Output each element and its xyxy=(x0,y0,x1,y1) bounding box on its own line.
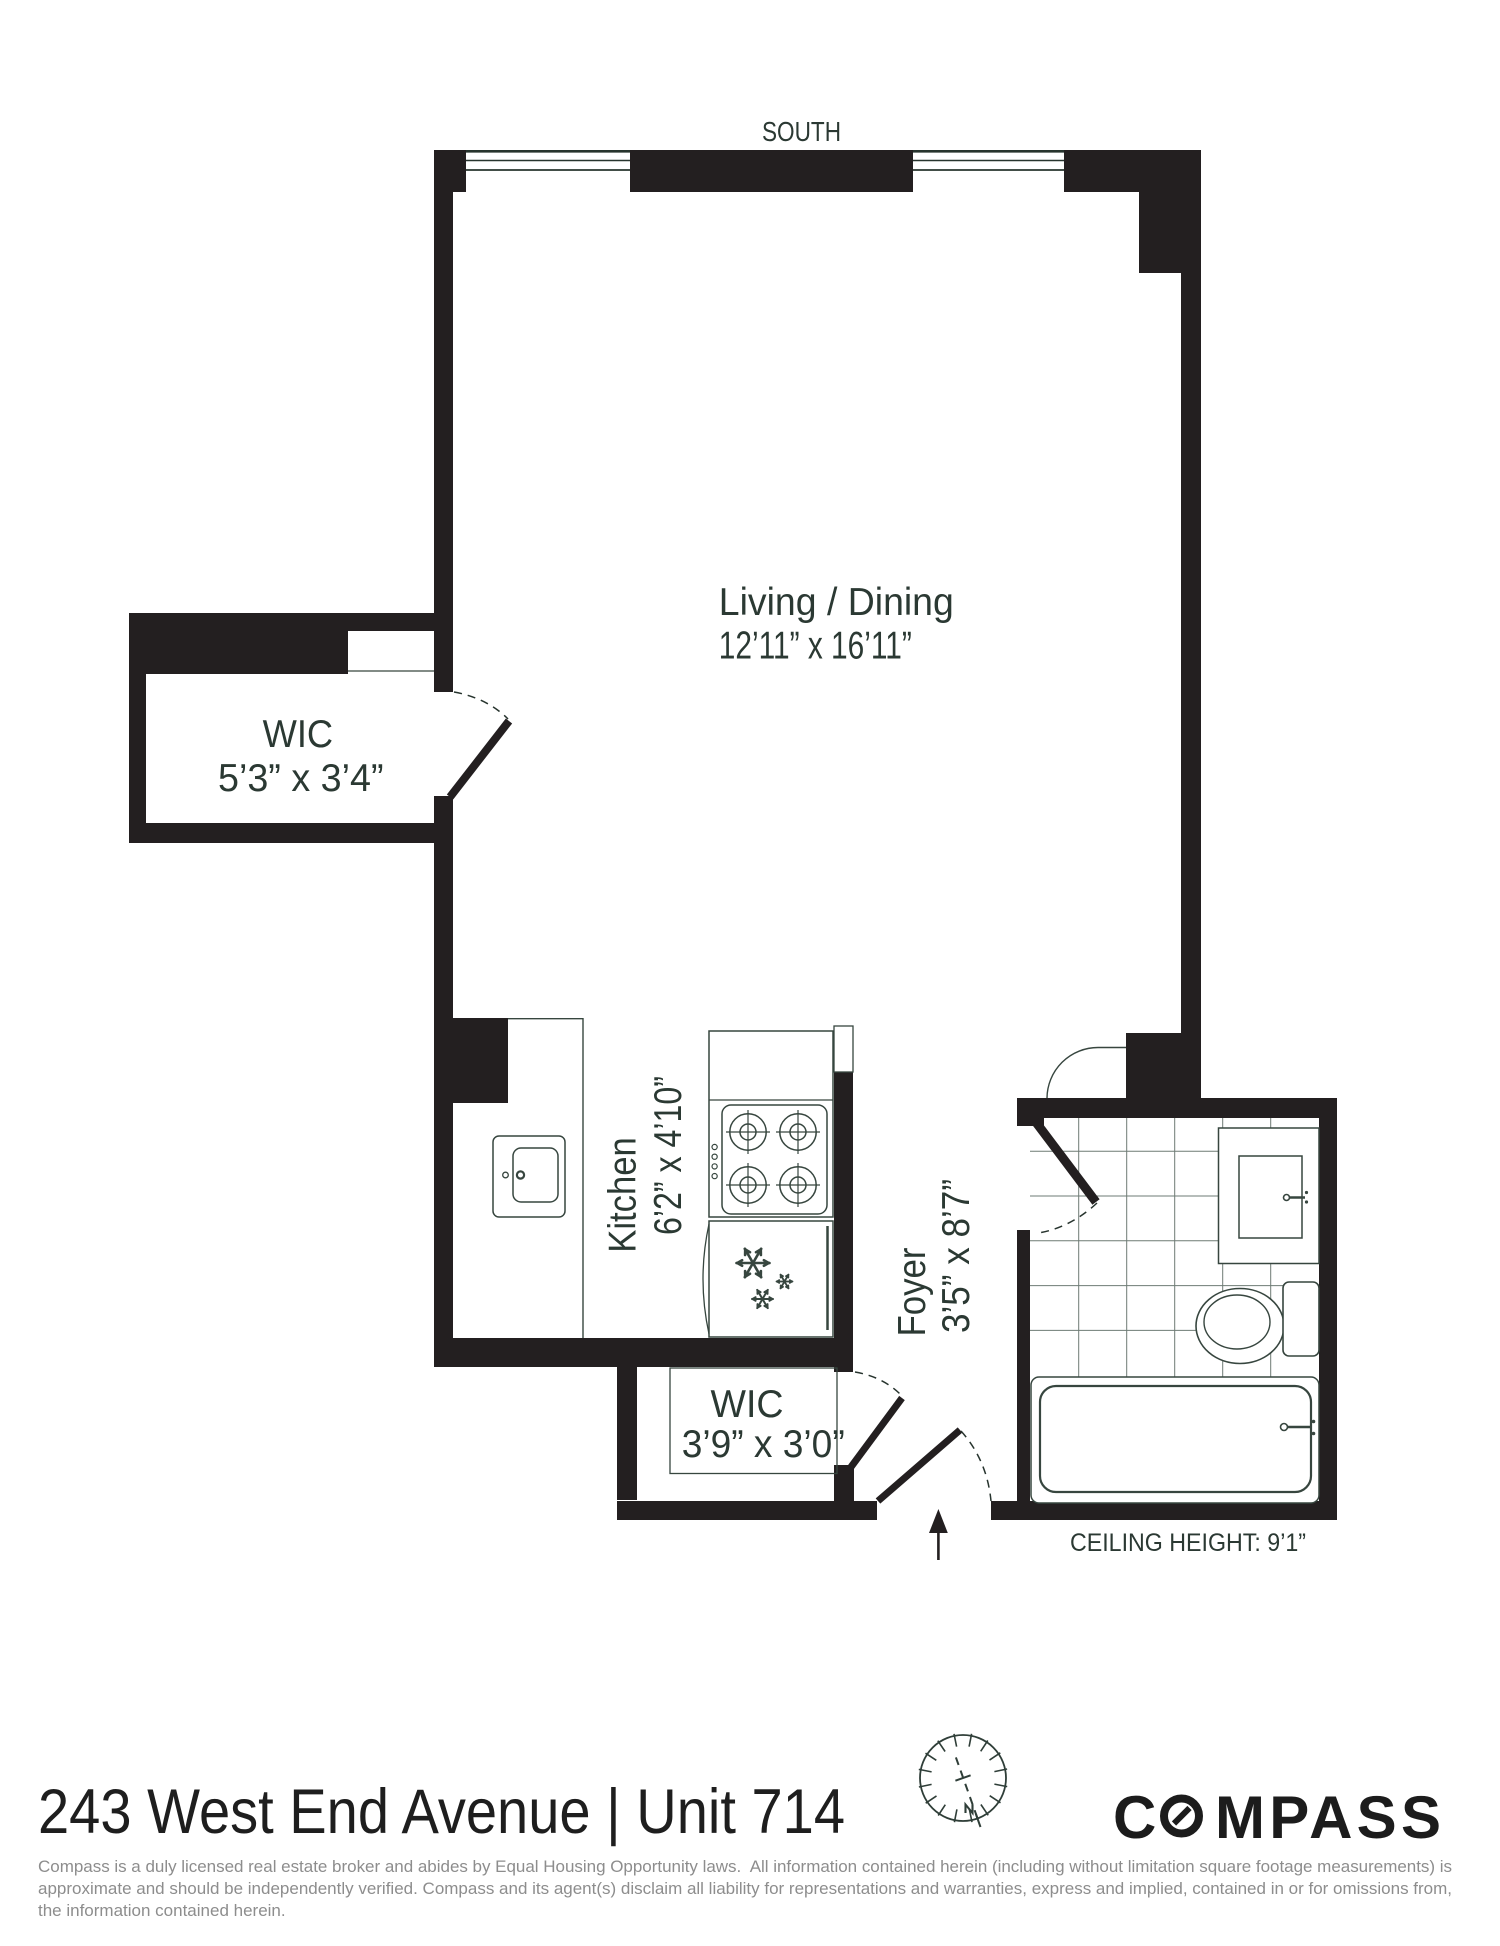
svg-text:SOUTH: SOUTH xyxy=(762,116,841,147)
svg-text:C: C xyxy=(1113,1784,1156,1851)
svg-text:WIC: WIC xyxy=(711,1383,784,1426)
svg-text:243 West End Avenue | Unit 714: 243 West End Avenue | Unit 714 xyxy=(38,1777,845,1847)
svg-text:6’2” x 4’10”: 6’2” x 4’10” xyxy=(647,1076,690,1235)
svg-text:the information contained here: the information contained herein. xyxy=(38,1901,286,1920)
svg-text:Compass is a duly licensed rea: Compass is a duly licensed real estate b… xyxy=(38,1857,1452,1876)
svg-text:WIC: WIC xyxy=(263,713,334,756)
svg-text:Foyer: Foyer xyxy=(891,1247,934,1336)
svg-text:CEILING HEIGHT: 9’1”: CEILING HEIGHT: 9’1” xyxy=(1070,1529,1306,1557)
svg-text:approximate and should be inde: approximate and should be independently … xyxy=(38,1879,1452,1898)
svg-text:3’9” x 3’0”: 3’9” x 3’0” xyxy=(682,1423,845,1466)
svg-text:3’5” x 8’7”: 3’5” x 8’7” xyxy=(935,1179,978,1333)
svg-text:12’11” x 16’11”: 12’11” x 16’11” xyxy=(719,625,912,668)
svg-text:Living / Dining: Living / Dining xyxy=(719,581,954,624)
svg-text:MPASS: MPASS xyxy=(1215,1784,1441,1851)
svg-text:5’3” x 3’4”: 5’3” x 3’4” xyxy=(218,757,384,800)
svg-text:Kitchen: Kitchen xyxy=(602,1137,645,1253)
